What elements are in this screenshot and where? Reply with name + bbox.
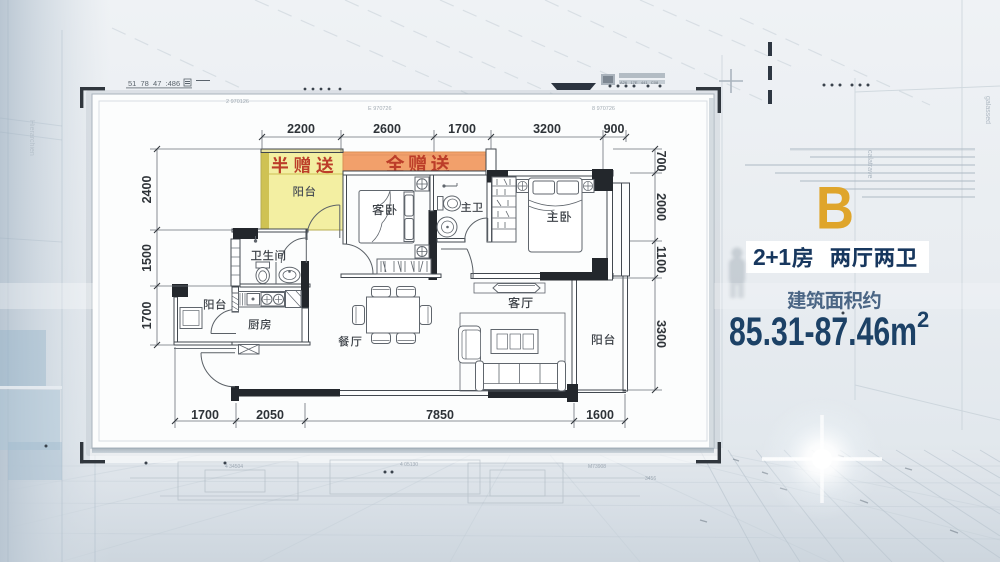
svg-text:Hierarchien: Hierarchien <box>28 120 35 156</box>
svg-text:7850: 7850 <box>426 408 454 422</box>
svg-text:1100: 1100 <box>654 246 668 273</box>
svg-text:B: B <box>816 174 854 241</box>
svg-text:2+1: 2+1 <box>753 244 791 270</box>
svg-text:4 05130: 4 05130 <box>400 462 418 468</box>
svg-text:4 34504: 4 34504 <box>225 464 243 470</box>
svg-text:700: 700 <box>654 151 668 172</box>
svg-text:8 970726: 8 970726 <box>592 106 615 112</box>
svg-text:galassed: galassed <box>984 96 991 124</box>
svg-text:2200: 2200 <box>287 122 315 136</box>
svg-text:E 970726: E 970726 <box>368 106 392 112</box>
svg-text:85.31-87.46m: 85.31-87.46m <box>729 310 917 354</box>
svg-text:2400: 2400 <box>140 176 154 204</box>
svg-text:51 78 47 :486: 51 78 47 :486 <box>128 79 180 88</box>
svg-text:2600: 2600 <box>373 122 401 136</box>
svg-text:3456: 3456 <box>645 476 656 482</box>
svg-text:1600: 1600 <box>586 408 614 422</box>
svg-text:2050: 2050 <box>256 408 284 422</box>
svg-text:2000: 2000 <box>654 193 668 221</box>
svg-text:3200: 3200 <box>533 122 561 136</box>
svg-text:M73908: M73908 <box>588 464 606 470</box>
svg-text:1500: 1500 <box>140 244 154 272</box>
svg-text:3300: 3300 <box>654 320 668 348</box>
svg-text:1700: 1700 <box>448 122 476 136</box>
svg-text:2 970126: 2 970126 <box>226 99 249 105</box>
svg-text:A26 17E 441 C08: A26 17E 441 C08 <box>620 80 659 85</box>
svg-text:2: 2 <box>917 307 929 332</box>
svg-text:900: 900 <box>604 122 625 136</box>
svg-text:1700: 1700 <box>140 302 154 330</box>
svg-text:1700: 1700 <box>191 408 219 422</box>
